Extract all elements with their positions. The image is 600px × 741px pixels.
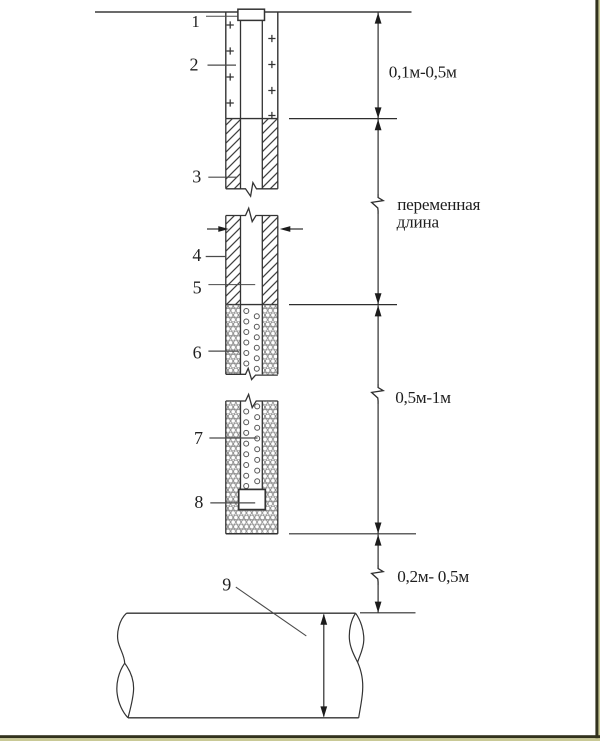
- svg-text:6: 6: [193, 343, 202, 363]
- svg-text:1: 1: [192, 12, 200, 31]
- svg-text:5: 5: [193, 277, 202, 297]
- svg-text:0,5м-1м: 0,5м-1м: [395, 388, 451, 407]
- svg-text:0,1м-0,5м: 0,1м-0,5м: [389, 62, 457, 81]
- svg-text:4: 4: [192, 245, 201, 265]
- svg-text:переменная: переменная: [397, 195, 480, 214]
- svg-text:8: 8: [194, 492, 203, 512]
- svg-text:7: 7: [194, 428, 203, 448]
- svg-text:3: 3: [192, 167, 201, 187]
- svg-text:2: 2: [190, 55, 199, 75]
- svg-text:длина: длина: [397, 213, 440, 232]
- svg-text:9: 9: [222, 575, 231, 595]
- svg-text:0,2м- 0,5м: 0,2м- 0,5м: [397, 567, 469, 586]
